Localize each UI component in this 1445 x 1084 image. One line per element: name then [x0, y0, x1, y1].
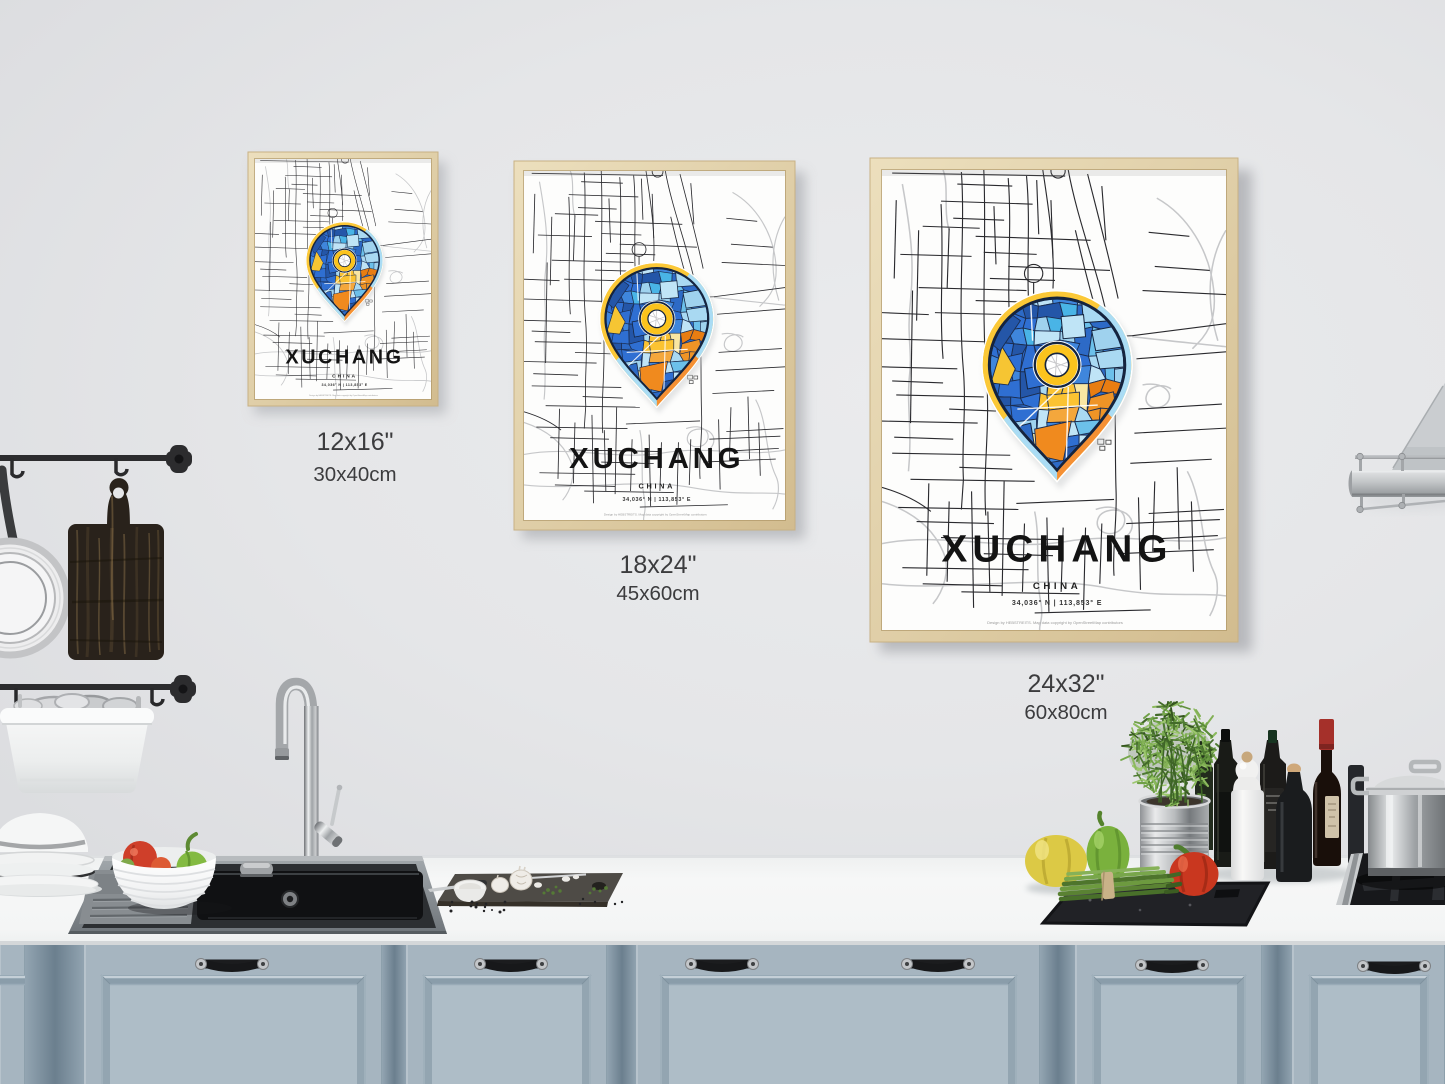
svg-text:24x32": 24x32"	[1028, 670, 1105, 698]
svg-text:45x60cm: 45x60cm	[616, 582, 699, 605]
svg-text:12x16": 12x16"	[317, 428, 394, 456]
svg-text:60x80cm: 60x80cm	[1024, 701, 1107, 724]
svg-text:18x24": 18x24"	[620, 551, 697, 579]
svg-text:30x40cm: 30x40cm	[313, 463, 396, 486]
